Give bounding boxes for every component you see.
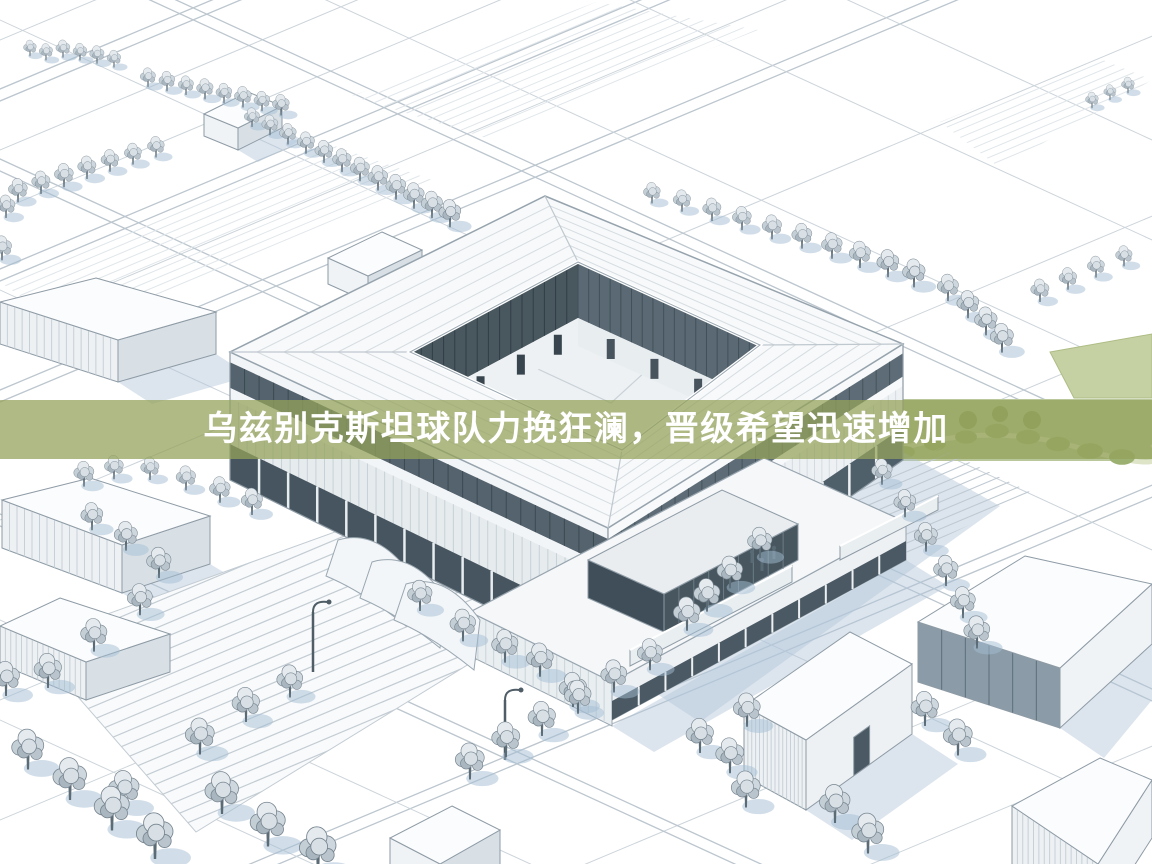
headline-text: 乌兹别克斯坦球队力挽狂澜，晋级希望迅速增加 bbox=[203, 400, 949, 459]
headline-banner: 乌兹别克斯坦球队力挽狂澜，晋级希望迅速增加 bbox=[0, 400, 1152, 459]
article-hero: 乌兹别克斯坦球队力挽狂澜，晋级希望迅速增加 bbox=[0, 0, 1152, 864]
